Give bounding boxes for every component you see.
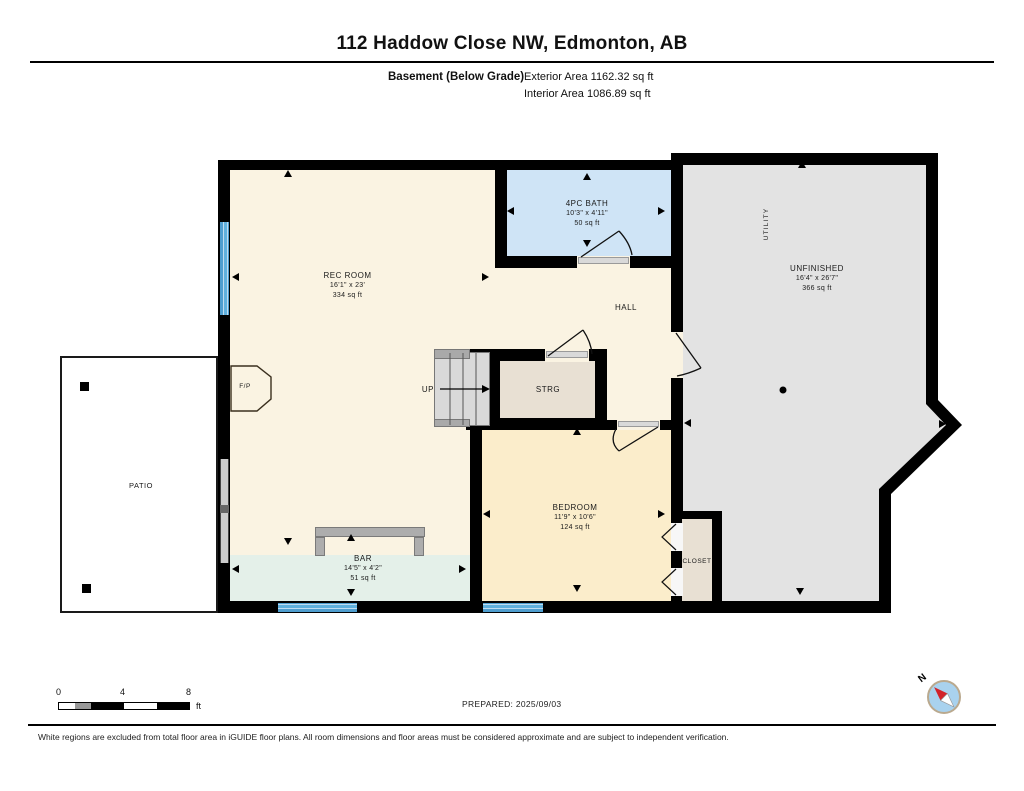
floorplan-page: 112 Haddow Close NW, Edmonton, AB Baseme… — [0, 0, 1024, 791]
compass-north-label: N — [916, 672, 928, 685]
disclaimer-text: White regions are excluded from total fl… — [38, 732, 998, 742]
footer-divider — [28, 724, 996, 726]
compass: N — [0, 0, 1024, 791]
